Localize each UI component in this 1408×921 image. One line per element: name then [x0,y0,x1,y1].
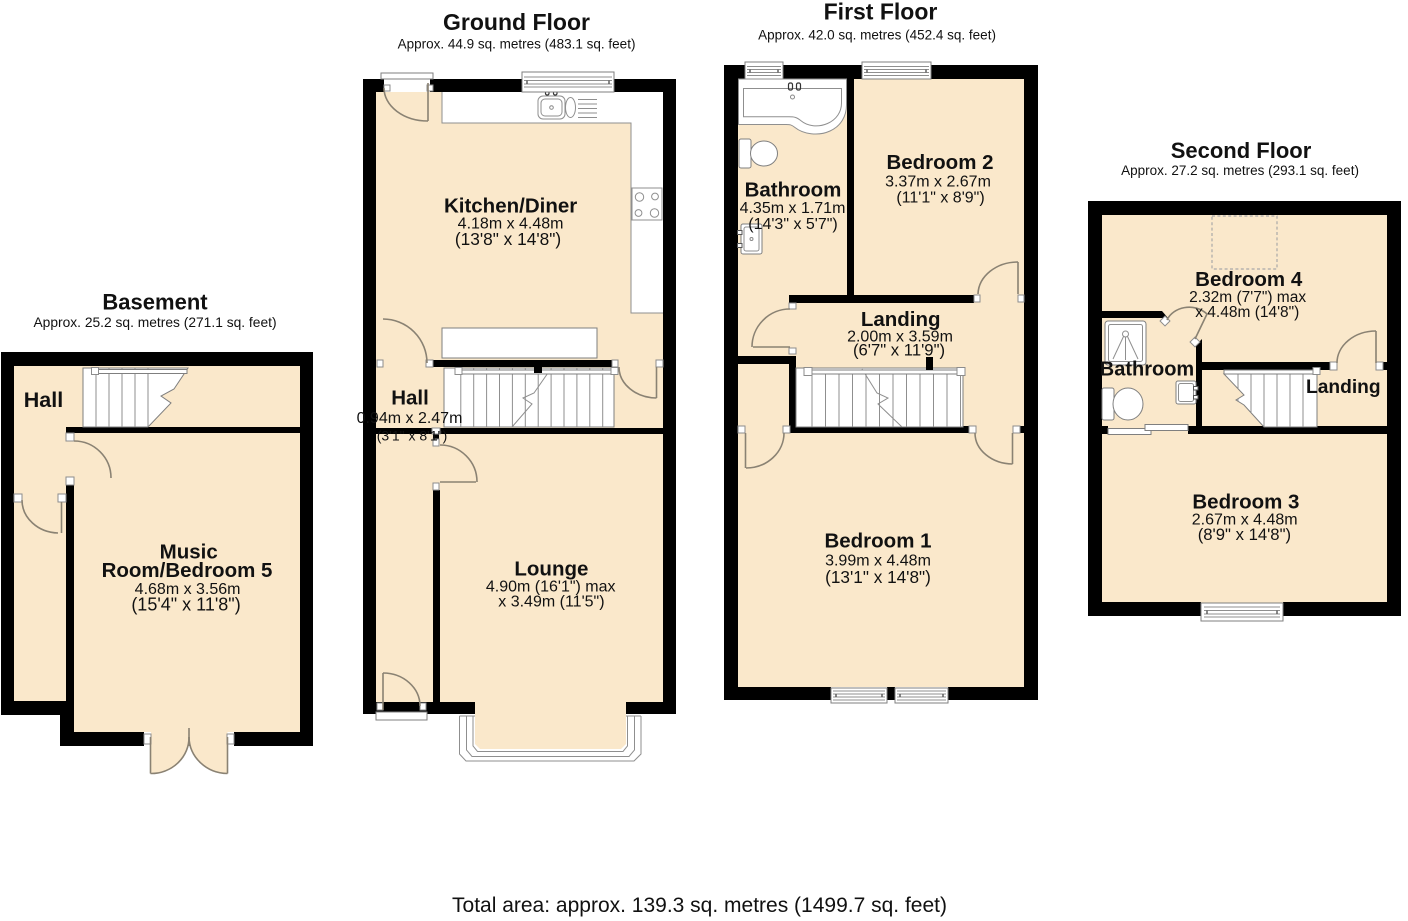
svg-text:Room/Bedroom 5: Room/Bedroom 5 [102,559,273,582]
svg-text:(6'7" x 11'9"): (6'7" x 11'9") [853,340,945,359]
svg-text:Hall: Hall [391,387,429,410]
svg-text:Bathroom: Bathroom [1100,359,1194,381]
svg-text:Second Floor: Second Floor [1171,138,1312,163]
svg-text:Bedroom 1: Bedroom 1 [824,530,931,553]
svg-text:x 4.48m (14'8"): x 4.48m (14'8") [1195,304,1299,321]
svg-text:Bedroom 2: Bedroom 2 [886,151,993,174]
svg-text:Kitchen/Diner: Kitchen/Diner [444,194,577,217]
svg-text:(11'1" x 8'9"): (11'1" x 8'9") [896,190,984,207]
svg-text:Ground Floor: Ground Floor [443,9,590,35]
svg-text:3.37m x 2.67m: 3.37m x 2.67m [885,174,991,191]
svg-text:Approx. 44.9 sq. metres (483.1: Approx. 44.9 sq. metres (483.1 sq. feet) [398,37,636,52]
svg-text:(15'4" x 11'8"): (15'4" x 11'8") [131,594,240,614]
svg-text:(14'3" x 5'7"): (14'3" x 5'7") [748,216,838,233]
svg-text:Approx. 42.0 sq. metres (452.4: Approx. 42.0 sq. metres (452.4 sq. feet) [758,28,996,43]
svg-text:(8'9" x 14'8"): (8'9" x 14'8") [1198,525,1291,544]
svg-text:First Floor: First Floor [824,0,938,25]
svg-text:(13'1" x 14'8"): (13'1" x 14'8") [825,567,931,587]
svg-text:Approx. 25.2 sq. metres (271.1: Approx. 25.2 sq. metres (271.1 sq. feet) [33,315,276,330]
svg-text:Bathroom: Bathroom [745,179,842,202]
svg-text:(3'1" x 8'1"): (3'1" x 8'1") [377,428,448,444]
svg-text:Lounge: Lounge [514,557,588,580]
svg-text:Bedroom 4: Bedroom 4 [1195,268,1303,291]
svg-text:Landing: Landing [1306,377,1381,398]
svg-text:Basement: Basement [102,290,208,315]
svg-text:Hall: Hall [24,388,63,412]
svg-text:0.94m x 2.47m: 0.94m x 2.47m [357,410,463,427]
svg-text:Approx. 27.2 sq. metres (293.1: Approx. 27.2 sq. metres (293.1 sq. feet) [1121,163,1359,178]
svg-text:x 3.49m (11'5"): x 3.49m (11'5") [498,594,604,611]
svg-text:4.35m x 1.71m: 4.35m x 1.71m [740,200,846,217]
svg-text:Bedroom 3: Bedroom 3 [1192,490,1299,513]
svg-text:Total area: approx. 139.3 sq.: Total area: approx. 139.3 sq. metres (14… [452,894,947,917]
svg-text:(13'8" x 14'8"): (13'8" x 14'8") [455,229,561,249]
